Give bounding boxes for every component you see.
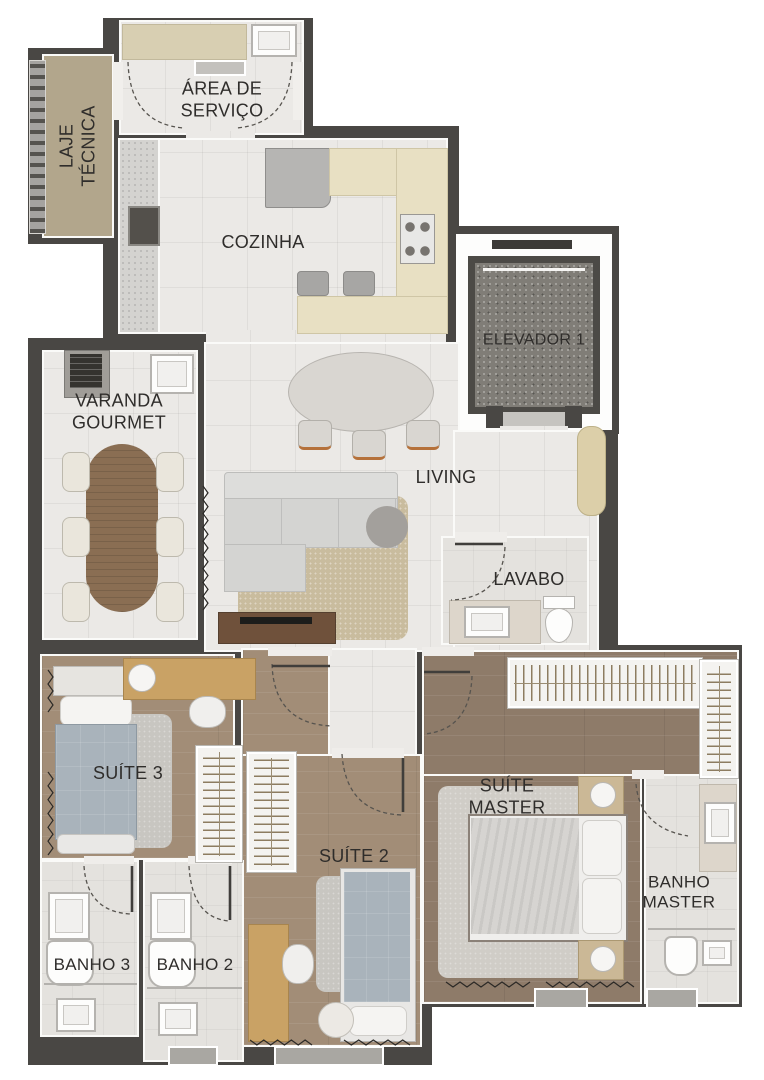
servico-drying-rack <box>194 60 246 76</box>
corridor <box>328 650 415 756</box>
banho-master-door-gap <box>632 770 664 779</box>
suite2-desk <box>248 924 289 1042</box>
kitchen-island <box>297 296 448 334</box>
dining-chair <box>298 420 332 450</box>
servico-door-gap-left <box>113 62 123 120</box>
suite2-bed-pillow <box>349 1006 407 1036</box>
label-area-servico: ÁREA DE SERVIÇO <box>173 78 271 121</box>
label-varanda-gourmet: VARANDA GOURMET <box>67 390 171 433</box>
facade-ledge <box>534 988 588 1009</box>
suite3-desk-chair <box>189 696 226 728</box>
servico-tank-sink <box>251 24 297 57</box>
varanda-chair <box>62 517 90 557</box>
kitchen-sink <box>128 206 160 246</box>
suite2-door-gap <box>332 748 404 758</box>
banho3-glass <box>44 983 137 985</box>
sofa-chaise <box>224 544 306 592</box>
dining-chair <box>406 420 440 450</box>
varanda-chair <box>156 452 184 492</box>
servico-door-gap-right <box>293 62 303 120</box>
suite2-bed-blanket <box>344 872 410 1002</box>
cooktop <box>400 214 435 264</box>
label-suite2: SUÍTE 2 <box>319 846 389 868</box>
varanda-chair <box>62 582 90 622</box>
grill-top <box>70 354 102 388</box>
label-cozinha: COZINHA <box>221 232 304 254</box>
suite2-pouf <box>318 1002 354 1038</box>
suite3-lamp <box>128 664 156 692</box>
label-suite3: SUÍTE 3 <box>93 763 163 785</box>
varanda-chair <box>156 517 184 557</box>
label-elevador: ELEVADOR 1 <box>483 330 585 349</box>
banho3-sink <box>48 892 90 940</box>
label-banho-master: BANHO MASTER <box>639 873 719 914</box>
facade-ledge <box>168 1046 218 1066</box>
hall-cabinet <box>577 426 606 516</box>
dining-chair <box>352 430 386 460</box>
label-banho2: BANHO 2 <box>157 955 234 975</box>
elevator-door-post <box>565 406 582 428</box>
varanda-dining-table <box>86 444 158 612</box>
suite3-bed-pillow <box>60 696 132 726</box>
suite3-bed-foot <box>57 834 135 854</box>
suite3-door-gap <box>268 647 332 656</box>
kitchen-stool <box>343 271 375 296</box>
banho3-door-gap <box>84 856 134 864</box>
master-duvet <box>471 818 579 934</box>
laje-louver-vents <box>29 60 46 234</box>
banho3-shower-head <box>56 998 96 1032</box>
elevator-door-post <box>486 406 503 428</box>
master-closet-right <box>700 660 738 778</box>
floor-plan: LAJE TÉCNICA ÁREA DE SERVIÇO COZINHA ELE… <box>0 0 764 1080</box>
label-suite-master: SUÍTE MASTER <box>467 775 547 818</box>
banho2-sink <box>150 892 192 940</box>
varanda-chair <box>62 452 90 492</box>
master-closet-top <box>508 658 702 708</box>
suite2-closet <box>247 752 296 872</box>
master-lamp <box>590 782 616 808</box>
facade-ledge <box>646 988 698 1009</box>
master-lamp <box>590 946 616 972</box>
master-door-gap <box>422 647 474 656</box>
master-pillow <box>582 820 622 876</box>
banho-master-glass <box>648 928 735 930</box>
varanda-chair <box>156 582 184 622</box>
label-laje-tecnica: LAJE TÉCNICA <box>56 100 99 192</box>
servico-counter <box>122 24 247 60</box>
label-lavabo: LAVABO <box>493 569 564 591</box>
label-living: LIVING <box>416 467 477 489</box>
master-pillow <box>582 878 622 934</box>
facade-ledge <box>274 1046 384 1066</box>
varanda-sink <box>150 354 194 394</box>
banho-master-toilet <box>664 936 698 976</box>
side-table-round <box>366 506 408 548</box>
suite2-desk-chair <box>282 944 314 984</box>
elevator-handrail <box>483 268 585 271</box>
lavabo-door-gap <box>455 532 507 542</box>
lavabo-sink <box>464 606 510 638</box>
banho-master-sink <box>704 802 736 844</box>
label-banho3: BANHO 3 <box>54 955 131 975</box>
fridge <box>265 148 331 208</box>
elevator-door-bar <box>492 240 572 249</box>
banho-master-shower-head <box>702 940 732 966</box>
tv <box>240 617 312 624</box>
banho2-shower-head <box>158 1002 198 1036</box>
banho2-glass <box>147 987 242 989</box>
suite3-closet <box>196 746 242 862</box>
kitchen-stool <box>297 271 329 296</box>
